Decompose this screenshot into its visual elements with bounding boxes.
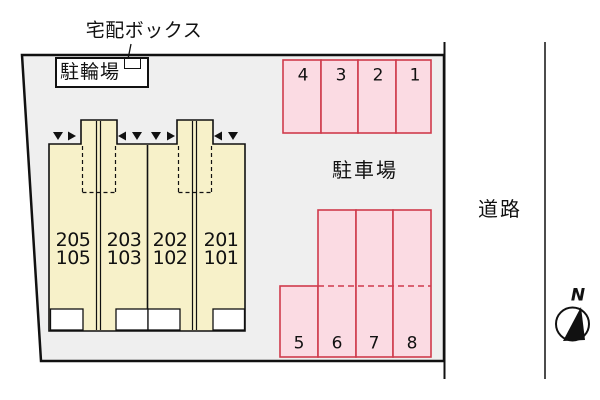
parking-number-7: 7	[369, 336, 380, 353]
unit-lower-number: 101	[204, 249, 239, 267]
road-label: 道路	[478, 199, 522, 219]
bicycle-parking-label: 駐輪場	[60, 61, 120, 83]
parking-number-1: 1	[410, 68, 421, 85]
parking-number-2: 2	[373, 68, 384, 85]
unit-label-201-101: 201 101	[204, 231, 239, 267]
unit-lower-number: 103	[107, 249, 142, 267]
unit-label-205-105: 205 105	[56, 231, 91, 267]
text-layer: 宅配ボックス 駐輪場 4 3 2 1 駐車場 5 6 7 8 205 105 2…	[0, 0, 600, 400]
unit-label-202-102: 202 102	[153, 231, 188, 267]
delivery-box-marker-icon	[124, 58, 141, 69]
unit-lower-number: 105	[56, 249, 91, 267]
parking-number-6: 6	[332, 336, 343, 353]
north-label: N	[571, 288, 585, 305]
parking-number-4: 4	[298, 68, 309, 85]
parking-number-8: 8	[407, 336, 418, 353]
parking-number-5: 5	[294, 336, 305, 353]
parking-lot-label: 駐車場	[332, 160, 398, 180]
delivery-box-label: 宅配ボックス	[86, 22, 202, 41]
unit-label-203-103: 203 103	[107, 231, 142, 267]
parking-number-3: 3	[336, 68, 347, 85]
unit-lower-number: 102	[153, 249, 188, 267]
site-plan: 宅配ボックス 駐輪場 4 3 2 1 駐車場 5 6 7 8 205 105 2…	[0, 0, 600, 400]
